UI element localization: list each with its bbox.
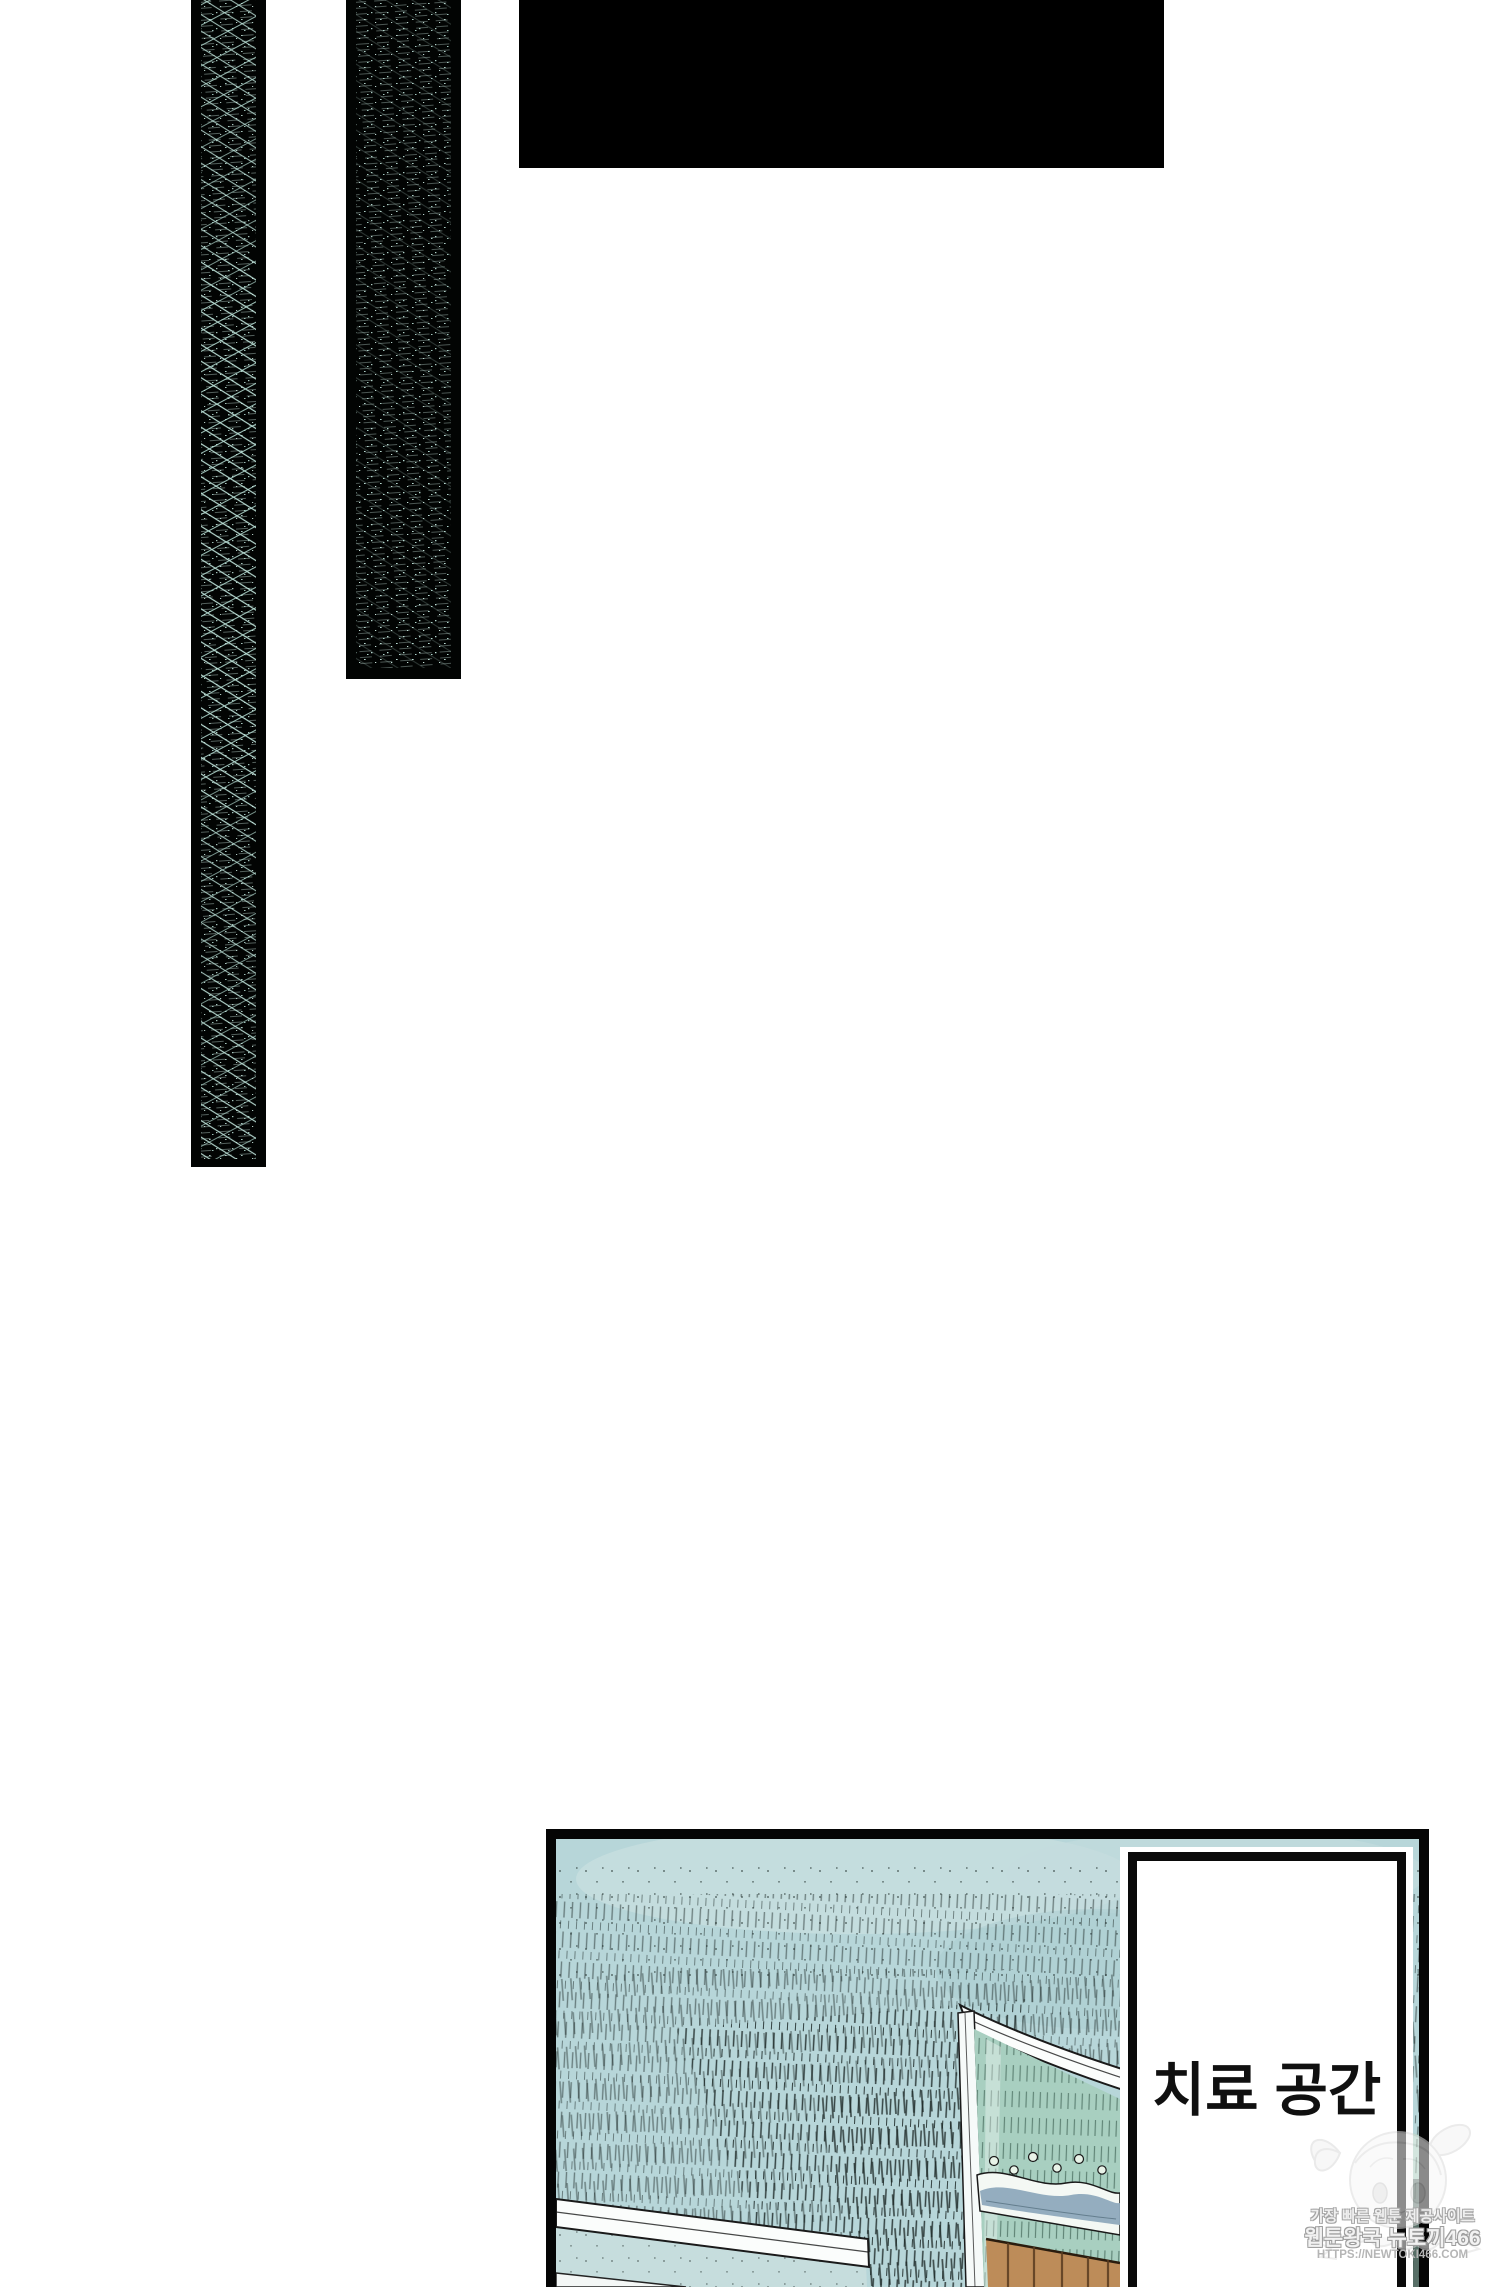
site-watermark: 가장 빠른 웹툰 제공사이트 웹툰왕국 뉴토끼466 HTTPS://NEWTO…	[1285, 2115, 1500, 2287]
watermark-sitename: 웹툰왕국 뉴토끼466	[1285, 2222, 1500, 2252]
ink-texture-art-second	[346, 0, 461, 679]
ink-texture-art-left	[191, 0, 266, 1167]
ink-texture-strip-left	[191, 0, 266, 1167]
ink-texture-strip-second	[346, 0, 461, 679]
watermark-url: HTTPS://NEWTOKI466.COM	[1285, 2249, 1500, 2261]
solid-black-panel	[519, 0, 1164, 168]
webtoon-page: { "page": { "kind": "webtoon episode pag…	[0, 0, 1500, 2287]
mascot-ghost-icon	[1285, 2115, 1500, 2287]
